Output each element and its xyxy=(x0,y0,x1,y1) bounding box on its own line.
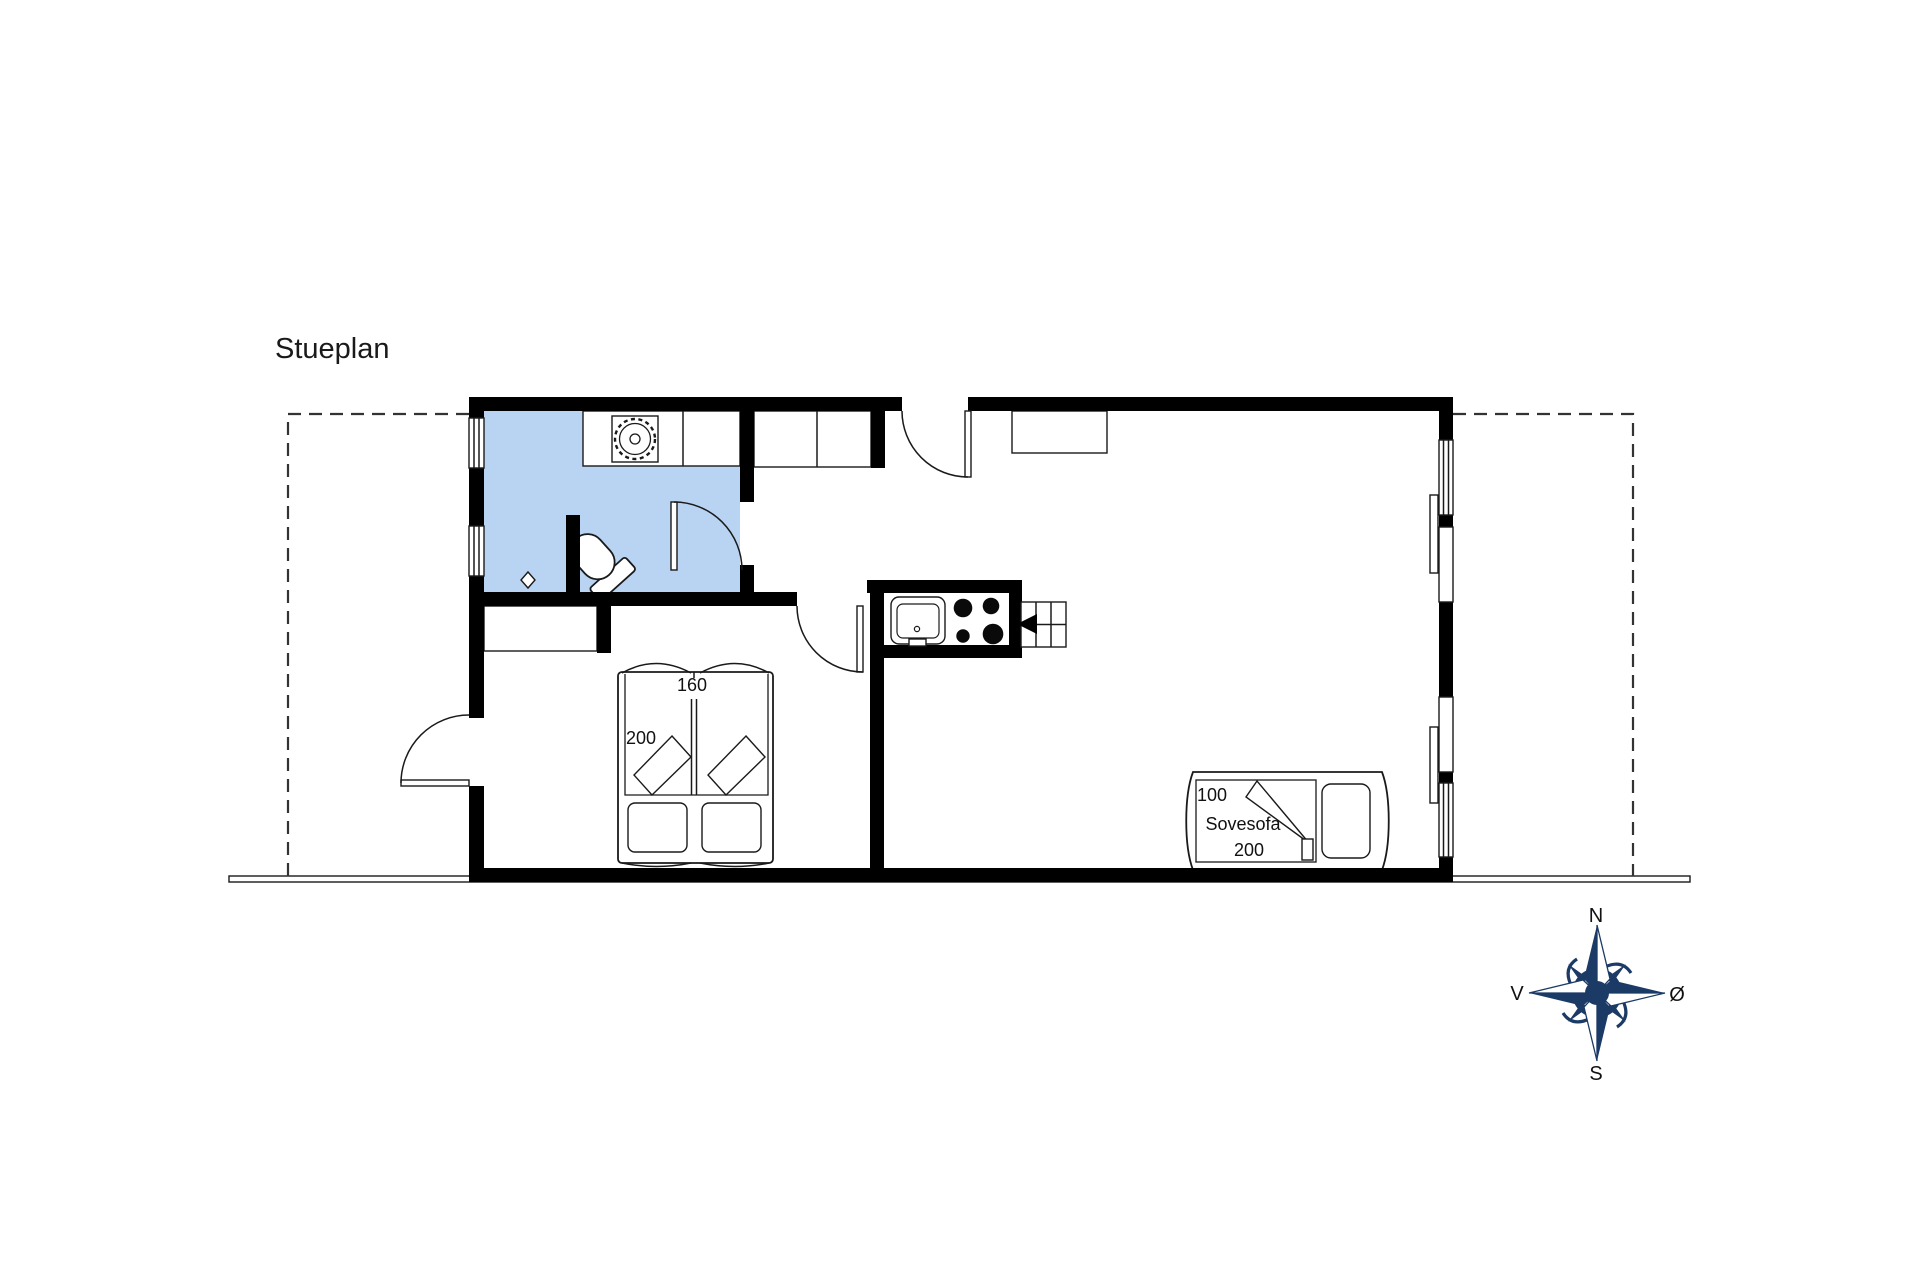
compass-north-label: N xyxy=(1589,905,1603,927)
wall-segment xyxy=(1439,857,1453,875)
sofa-bed: 100 Sovesofa 200 xyxy=(1186,772,1389,870)
wall-segment xyxy=(871,411,885,468)
stairs xyxy=(1017,602,1066,647)
washbasin-drain xyxy=(630,434,640,444)
terrace-outline-right xyxy=(1453,414,1633,876)
closet-nook xyxy=(484,606,597,651)
window-frame xyxy=(469,418,484,468)
floorplan-svg: 160 200 100 Sovesofa 200 xyxy=(0,0,1920,1279)
counter-wall-right xyxy=(1009,580,1022,658)
wall-segment xyxy=(740,411,754,502)
wall-segment xyxy=(469,592,797,606)
bed-blanket-left xyxy=(628,803,687,852)
counter-wall-top xyxy=(867,580,1022,593)
terrace-door-left xyxy=(401,715,469,786)
wall-segment xyxy=(597,606,611,653)
wall-segment xyxy=(469,786,484,876)
wall-segment xyxy=(469,468,484,526)
wall-segment xyxy=(1439,515,1453,527)
burner xyxy=(956,629,969,642)
wall-segment xyxy=(1439,772,1453,783)
window-right-1 xyxy=(1439,440,1453,515)
wall-segment xyxy=(469,404,484,418)
door-leaf xyxy=(401,780,469,786)
bathroom-vanity xyxy=(583,411,740,466)
bed-length-label: 200 xyxy=(626,728,656,748)
wall-segment xyxy=(469,868,1453,882)
burner xyxy=(954,599,973,618)
thin-wall-right-upper xyxy=(1439,527,1453,602)
door-leaf xyxy=(857,606,863,672)
burner xyxy=(983,624,1004,645)
compass-rose: N S V Ø xyxy=(1510,905,1684,1085)
sliding-panel-lower xyxy=(1430,727,1438,803)
wall-segment xyxy=(968,397,1453,411)
hall-wardrobe xyxy=(754,411,871,467)
wall-segment xyxy=(1439,602,1453,697)
sofa-width-label: 100 xyxy=(1197,785,1227,805)
sofa-name-label: Sovesofa xyxy=(1205,814,1281,834)
floorplan-canvas: 160 200 100 Sovesofa 200 xyxy=(0,0,1920,1279)
burner xyxy=(983,598,1000,615)
compass-hub xyxy=(1585,981,1609,1005)
sink-faucet xyxy=(909,639,926,646)
compass-west-label: V xyxy=(1510,983,1524,1005)
window-frame xyxy=(1439,783,1453,857)
compass-east-label: Ø xyxy=(1669,984,1685,1006)
door-swing-arc xyxy=(401,715,469,783)
wall-segment xyxy=(1439,404,1453,440)
sofa-length-label: 200 xyxy=(1234,840,1264,860)
wardrobe-outline xyxy=(754,411,871,467)
sliding-panel-upper xyxy=(1430,495,1438,573)
page-title: Stueplan xyxy=(275,333,390,365)
counter-wall-bottom xyxy=(884,645,1022,658)
window-left-1 xyxy=(469,418,484,468)
wall-segment xyxy=(870,580,884,868)
compass-south-label: S xyxy=(1589,1063,1602,1085)
sideboard xyxy=(1012,411,1107,453)
bed-width-label: 160 xyxy=(677,675,707,695)
window-right-2 xyxy=(1439,783,1453,857)
thin-wall-right-lower xyxy=(1439,697,1453,772)
wall-segment xyxy=(566,515,580,606)
window-left-2 xyxy=(469,526,484,576)
vanity-counter xyxy=(583,411,740,466)
window-frame xyxy=(469,526,484,576)
bed-blanket-right xyxy=(702,803,761,852)
door-leaf xyxy=(671,502,677,570)
double-bed: 160 200 xyxy=(618,664,773,867)
wall-segment xyxy=(469,397,902,411)
terrace-outline-left xyxy=(288,414,469,876)
sofa-cushion xyxy=(1322,784,1370,858)
door-leaf xyxy=(965,411,971,477)
window-frame xyxy=(1439,440,1453,515)
sofa-fold-end xyxy=(1302,839,1313,860)
